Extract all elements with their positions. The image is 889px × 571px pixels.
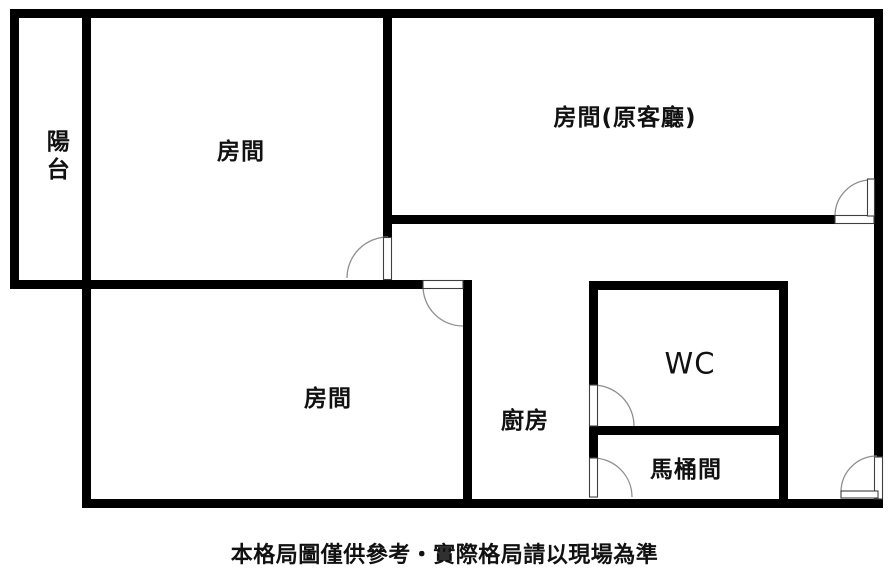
door-bedroom-lower — [423, 281, 463, 327]
floor-plan: 陽台 房間 房間(原客廳) 房間 廚房 WC 馬桶間 本格局圖僅供參考・實際格局… — [0, 0, 889, 571]
room-label-kitchen: 廚房 — [501, 408, 549, 434]
door-leaf — [868, 179, 875, 216]
door-leaf — [590, 385, 598, 426]
wall-top — [10, 9, 883, 18]
wall-wc-left-lower — [589, 435, 598, 458]
wall-wc-toilet-divider — [589, 426, 788, 435]
door-living-room — [835, 179, 875, 224]
door-leaf — [423, 281, 463, 289]
room-label-toilet-room: 馬桶間 — [650, 457, 722, 483]
wall-wc-top — [589, 281, 788, 290]
wall-bottom — [83, 499, 883, 508]
door-leaf — [841, 491, 878, 498]
door-swing-arc — [347, 237, 388, 278]
door-swing-arc — [593, 458, 632, 497]
door-swing-arc — [841, 456, 877, 492]
door-leaf — [384, 238, 392, 280]
disclaimer-caption: 本格局圖僅供參考・實際格局請以現場為準 — [0, 537, 889, 569]
door-swing-arc — [835, 180, 871, 216]
door-wc — [590, 385, 635, 426]
wall-wc-right — [779, 281, 788, 508]
walls — [10, 9, 883, 508]
wall-wc-left-upper — [589, 281, 598, 385]
door-swing-arc — [423, 286, 463, 326]
door-threshold — [835, 216, 874, 224]
room-label-balcony: 陽台 — [42, 129, 68, 185]
wall-spine-left — [82, 9, 91, 508]
wall-mid-horizontal — [10, 280, 423, 289]
wall-bedroom-lower-right — [463, 280, 472, 508]
door-toilet-room — [590, 458, 633, 497]
wall-bedroom-upper-right — [383, 9, 392, 237]
room-label-bedroom-upper-left: 房間 — [217, 139, 265, 165]
room-label-wc: WC — [665, 347, 716, 380]
door-bedroom-upper — [347, 237, 392, 280]
floor-plan-drawing — [0, 0, 889, 571]
wall-left — [10, 9, 19, 289]
door-entry — [841, 456, 883, 499]
door-leaf — [590, 458, 598, 497]
wall-right — [874, 9, 883, 457]
wall-living-room-bottom — [392, 215, 835, 224]
room-label-bedroom-former-living-room: 房間(原客廳) — [553, 105, 696, 131]
doors — [347, 179, 883, 499]
door-swing-arc — [593, 385, 634, 426]
room-label-bedroom-lower-left: 房間 — [304, 386, 352, 412]
